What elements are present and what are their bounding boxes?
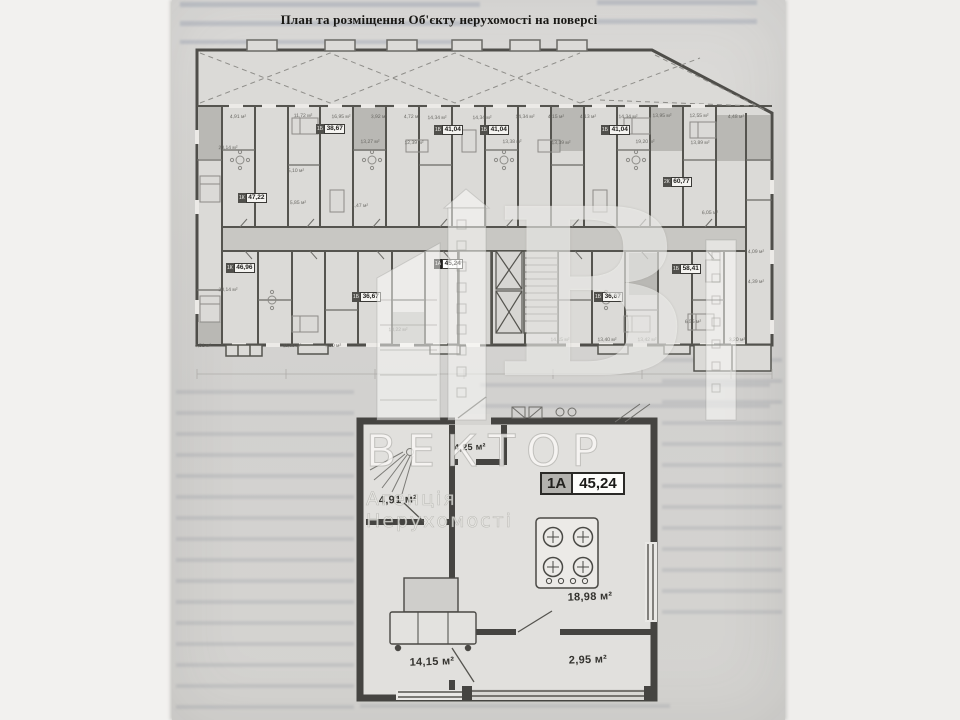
unit-code: 1А: [434, 259, 442, 269]
unit-badge: 2К60,77: [663, 177, 692, 187]
room-area-label: 12,39 м²: [404, 140, 423, 146]
room-area-label: 14,34 м²: [515, 114, 534, 120]
unit-code: 1Б: [594, 292, 602, 302]
unit-code: 2К: [663, 177, 671, 187]
wc-area-label: 4,25 м²: [454, 441, 486, 452]
unit-badge: 1К47,22: [238, 193, 267, 203]
room-area-label: 14,34 м²: [472, 115, 491, 121]
unit-code: 1К: [238, 193, 246, 203]
unit-area: 36,67: [360, 292, 381, 302]
room-area-label: 4,72 м²: [404, 114, 420, 120]
room-area-label: 13,95 м²: [652, 113, 671, 119]
room-area-label: 4,91 м²: [230, 114, 246, 120]
room-area-label: 13,40 м²: [597, 337, 616, 343]
unit-code: 1К: [226, 263, 234, 273]
unit-area: 36,67: [602, 292, 623, 302]
unit-area: 46,96: [234, 263, 255, 273]
scanned-document-photo: План та розміщення Об'єкту нерухомості н…: [0, 0, 960, 720]
unit-badge: 1Б41,04: [480, 125, 509, 135]
room-area-label: 14,34 м²: [618, 114, 637, 120]
room-area-label: 6,55 м²: [685, 319, 701, 325]
room-area-label: 13,42 м²: [637, 337, 656, 343]
unit-area: 41,04: [442, 125, 463, 135]
unit-badge: 1Б36,67: [352, 292, 381, 302]
unit-badge: 1Б36,67: [594, 292, 623, 302]
room-area-label: 19,20 м²: [635, 139, 654, 145]
unit-badge: 1Б41,04: [601, 125, 630, 135]
room-area-label: 14,34 м²: [427, 115, 446, 121]
room-area-label: 5,10 м²: [288, 168, 304, 174]
unit-badge: 1Б38,67: [316, 124, 345, 134]
unit-badge: 1К46,96: [226, 263, 255, 273]
kitchen-living-area-label: 18,98 м²: [567, 590, 612, 604]
room-area-label: 6,05 м²: [702, 210, 718, 216]
unit-area: 47,22: [246, 193, 267, 203]
room-area-label: 4,39 м²: [748, 279, 764, 285]
unit-code: 1Б: [352, 292, 360, 302]
unit-code: 1Б: [316, 124, 324, 134]
unit-code: 1Б: [601, 125, 609, 135]
apartment-number-badge: 1А 45,24: [540, 472, 625, 495]
room-area-label: 4,47 м²: [352, 203, 368, 209]
room-area-label: 13,27 м²: [360, 139, 379, 145]
unit-area: 45,24: [442, 259, 463, 269]
room-area-label: 4,51 м²: [195, 343, 211, 349]
unit-code: 1Б: [480, 125, 488, 135]
unit-badge: 1Б58,41: [672, 264, 701, 274]
hall-area-label: 4,91 м²: [379, 493, 418, 506]
room-area-label: 13,38 м²: [502, 139, 521, 145]
room-area-label: 13,39 м²: [551, 140, 570, 146]
apartment-area: 45,24: [573, 474, 623, 493]
unit-area: 38,67: [324, 124, 345, 134]
room-area-label: 12,55 м²: [689, 113, 708, 119]
room-area-label: 3,92 м²: [371, 114, 387, 120]
apartment-plan-svg: [0, 0, 960, 720]
unit-area: 41,04: [488, 125, 509, 135]
room-area-label: 4,09 м²: [748, 249, 764, 255]
unit-badge: 1А45,24: [434, 259, 463, 269]
bedroom-area-label: 14,15 м²: [409, 655, 454, 669]
balcony-area-label: 2,95 м²: [569, 653, 608, 666]
room-area-label: 7,90 м²: [325, 343, 341, 349]
room-area-label: 4,13 м²: [580, 114, 596, 120]
room-area-label: 14,15 м²: [550, 337, 569, 343]
room-area-label: 13,22 м²: [388, 327, 407, 333]
unit-badge: 1Б41,04: [434, 125, 463, 135]
unit-code: 1Б: [434, 125, 442, 135]
stove-icon: [536, 518, 598, 588]
room-area-label: 20,14 м²: [218, 287, 237, 293]
room-area-label: 20,14 м²: [218, 145, 237, 151]
room-area-label: 16,95 м²: [331, 114, 350, 120]
room-area-label: 3,20 м²: [729, 337, 745, 343]
room-area-label: 11,72 м²: [294, 113, 313, 119]
room-area-label: 4,48 м²: [728, 114, 744, 120]
room-area-label: 5,85 м²: [290, 200, 306, 206]
unit-area: 60,77: [671, 177, 692, 187]
room-area-label: 13,89 м²: [690, 140, 709, 146]
unit-code: 1Б: [672, 264, 680, 274]
room-area-label: 11,39 м²: [283, 343, 302, 349]
room-area-label: 4,15 м²: [548, 114, 564, 120]
unit-area: 41,04: [609, 125, 630, 135]
apartment-code: 1А: [542, 474, 573, 493]
unit-area: 58,41: [680, 264, 701, 274]
